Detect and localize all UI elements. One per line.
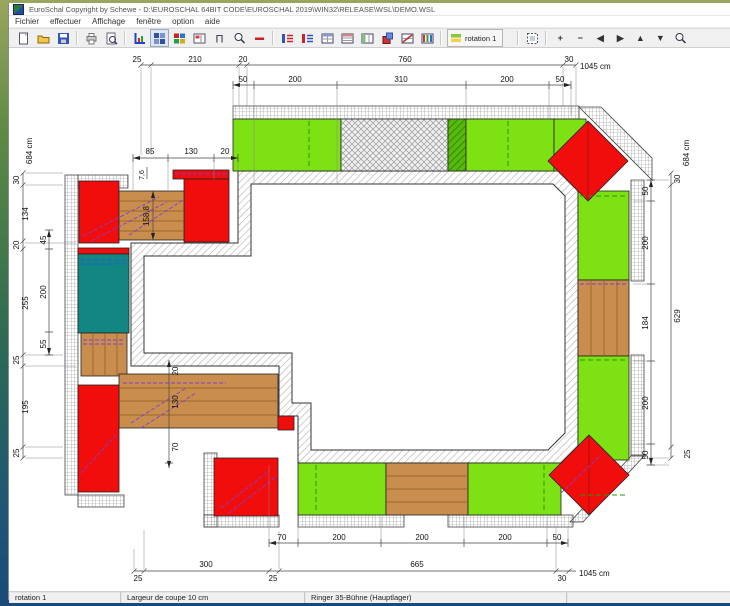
dim-label: 25 bbox=[269, 574, 278, 583]
dim-label: 134 bbox=[21, 207, 30, 221]
panel-darkgreen-hatched bbox=[448, 119, 466, 171]
dim-label: 50 bbox=[553, 533, 562, 542]
toolbar-separator bbox=[124, 31, 126, 45]
table-red-button[interactable] bbox=[398, 29, 417, 47]
print-button[interactable] bbox=[82, 29, 101, 47]
menu-aide[interactable]: aide bbox=[205, 17, 220, 26]
panel-wood-right bbox=[578, 280, 629, 356]
zoom-in-button[interactable]: + bbox=[551, 29, 570, 47]
dim-label: 665 bbox=[410, 560, 424, 569]
table-colored-button[interactable] bbox=[418, 29, 437, 47]
dim-label: 760 bbox=[398, 55, 412, 64]
dim-label: 200 bbox=[641, 236, 650, 250]
dim-label: 158,8 bbox=[142, 205, 151, 226]
title-bar: EuroSchal Copyright by Schewe - D:\EUROS… bbox=[9, 3, 730, 16]
dim-label: 50 bbox=[641, 450, 650, 459]
dim-label: 20 bbox=[221, 147, 230, 156]
dim-label: 55 bbox=[39, 339, 48, 348]
print-preview-button[interactable] bbox=[102, 29, 121, 47]
table-rows-button[interactable] bbox=[338, 29, 357, 47]
dim-label: 255 bbox=[21, 296, 30, 310]
dim-label: 85 bbox=[146, 147, 155, 156]
zoom-window-button[interactable] bbox=[671, 29, 690, 47]
dim-label: 20 bbox=[171, 366, 180, 375]
plan-view-button[interactable] bbox=[190, 29, 209, 47]
app-icon bbox=[13, 4, 24, 15]
dim-label: 30 bbox=[558, 574, 567, 583]
panels-view-button[interactable] bbox=[170, 29, 189, 47]
toolbar-separator bbox=[440, 31, 442, 45]
dim-label: 184 bbox=[641, 316, 650, 330]
grid-view-button[interactable] bbox=[150, 29, 169, 47]
status-system: Ringer 35-Bühne (Hauptlager) bbox=[305, 592, 567, 603]
status-empty bbox=[567, 592, 730, 603]
pan-left-button[interactable]: ◀ bbox=[591, 29, 610, 47]
formwork-plan: 25 210 20 760 30 1045 cm 50 200 310 200 … bbox=[9, 48, 730, 591]
panel-teal-left bbox=[78, 254, 129, 333]
dim-label: 310 bbox=[394, 75, 408, 84]
dim-label: 30 bbox=[12, 175, 21, 184]
list-red-button[interactable] bbox=[278, 29, 297, 47]
dim-label-total: 684 cm bbox=[682, 140, 691, 167]
drawing-canvas[interactable]: 25 210 20 760 30 1045 cm 50 200 310 200 … bbox=[9, 48, 730, 591]
box-3d-button[interactable] bbox=[378, 29, 397, 47]
new-document-button[interactable] bbox=[14, 29, 33, 47]
dim-label: 195 bbox=[21, 400, 30, 414]
dim-label: 45 bbox=[39, 235, 48, 244]
table-cols-button[interactable] bbox=[358, 29, 377, 47]
toolbar-separator bbox=[76, 31, 78, 45]
status-cut-width: Largeur de coupe 10 cm bbox=[121, 592, 305, 603]
open-file-button[interactable] bbox=[34, 29, 53, 47]
remove-button[interactable] bbox=[250, 29, 269, 47]
menu-fichier[interactable]: Fichier bbox=[15, 17, 39, 26]
dim-label-total: 1045 cm bbox=[580, 62, 611, 71]
overview-button[interactable] bbox=[523, 29, 542, 47]
dim-label: 30 bbox=[565, 55, 574, 64]
pi-symbol-button[interactable]: Π bbox=[210, 29, 229, 47]
panel-red-left-strip bbox=[78, 248, 129, 254]
toolbar-separator bbox=[272, 31, 274, 45]
dim-label: 200 bbox=[39, 285, 48, 299]
panel-green-top-left bbox=[233, 119, 341, 171]
dim-label: 30 bbox=[673, 174, 682, 183]
status-bar: rotation 1 Largeur de coupe 10 cm Ringer… bbox=[9, 591, 730, 603]
panel-red-bottom-step bbox=[214, 458, 278, 516]
dim-label: 50 bbox=[556, 75, 565, 84]
toolbar: Π rotation 1 + − ◀ ▶ ▲ ▼ bbox=[9, 28, 730, 48]
panel-wood-left-small bbox=[81, 333, 127, 376]
panel-green-right-upper bbox=[578, 191, 629, 280]
save-button[interactable] bbox=[54, 29, 73, 47]
list-blue-button[interactable] bbox=[298, 29, 317, 47]
rotation-select-button[interactable]: rotation 1 bbox=[447, 29, 503, 47]
dim-label: 629 bbox=[673, 309, 682, 323]
svg-text:Π: Π bbox=[215, 33, 223, 45]
menu-bar: Fichier effectuer Affichage fenêtre opti… bbox=[9, 16, 730, 28]
dim-label-total: 1045 cm bbox=[579, 569, 610, 578]
dim-label: 50 bbox=[239, 75, 248, 84]
dim-label: 130 bbox=[184, 147, 198, 156]
panel-green-bottom-right bbox=[468, 463, 561, 515]
panel-gap-crosshatch bbox=[341, 119, 448, 171]
panel-red-sliver bbox=[173, 170, 229, 179]
menu-fenetre[interactable]: fenêtre bbox=[136, 17, 161, 26]
dim-label: 20 bbox=[12, 240, 21, 249]
rotation-label: rotation 1 bbox=[465, 34, 496, 43]
window-title: EuroSchal Copyright by Schewe - D:\EUROS… bbox=[29, 5, 435, 14]
dim-label: 200 bbox=[415, 533, 429, 542]
panel-green-bottom-left bbox=[298, 463, 386, 515]
dim-label: 130 bbox=[171, 395, 180, 409]
dim-label: 25 bbox=[683, 449, 692, 458]
panel-wood-stair-topleft bbox=[119, 191, 184, 240]
dim-label: 20 bbox=[239, 55, 248, 64]
table-header-button[interactable] bbox=[318, 29, 337, 47]
chart-view-button[interactable] bbox=[130, 29, 149, 47]
dim-label: 200 bbox=[641, 396, 650, 410]
panel-green-top-right bbox=[466, 119, 554, 171]
dim-label: 70 bbox=[171, 442, 180, 451]
dim-label: 200 bbox=[288, 75, 302, 84]
screen: { "window": { "title": "EuroSchal Copyri… bbox=[0, 0, 730, 606]
zoom-tool-button[interactable] bbox=[230, 29, 249, 47]
dim-label: 7,6 bbox=[139, 170, 146, 180]
dim-label: 70 bbox=[278, 533, 287, 542]
pan-up-button[interactable]: ▲ bbox=[631, 29, 650, 47]
panel-red-step-bit bbox=[278, 416, 294, 430]
dim-label: 300 bbox=[199, 560, 213, 569]
dim-label: 25 bbox=[134, 574, 143, 583]
panel-red-topleft-b bbox=[184, 179, 229, 242]
menu-affichage[interactable]: Affichage bbox=[92, 17, 125, 26]
zoom-out-button[interactable]: − bbox=[571, 29, 590, 47]
dim-label: 200 bbox=[332, 533, 346, 542]
dim-label-total: 684 cm bbox=[25, 138, 34, 165]
dim-label: 25 bbox=[12, 355, 21, 364]
panel-red-topleft-a bbox=[79, 181, 119, 243]
toolbar-separator bbox=[517, 31, 519, 45]
dim-label: 210 bbox=[188, 55, 202, 64]
dim-label: 50 bbox=[641, 186, 650, 195]
pan-down-button[interactable]: ▼ bbox=[651, 29, 670, 47]
status-rotation: rotation 1 bbox=[9, 592, 121, 603]
dim-label: 25 bbox=[12, 448, 21, 457]
panel-red-lowerleft bbox=[78, 385, 119, 492]
menu-option[interactable]: option bbox=[172, 17, 194, 26]
rotation-icon bbox=[450, 32, 462, 44]
menu-effectuer[interactable]: effectuer bbox=[50, 17, 81, 26]
dim-label: 200 bbox=[498, 533, 512, 542]
dim-label: 25 bbox=[133, 55, 142, 64]
app-window: EuroSchal Copyright by Schewe - D:\EUROS… bbox=[8, 3, 730, 600]
dim-label: 200 bbox=[500, 75, 514, 84]
toolbar-separator bbox=[545, 31, 547, 45]
pan-right-button[interactable]: ▶ bbox=[611, 29, 630, 47]
